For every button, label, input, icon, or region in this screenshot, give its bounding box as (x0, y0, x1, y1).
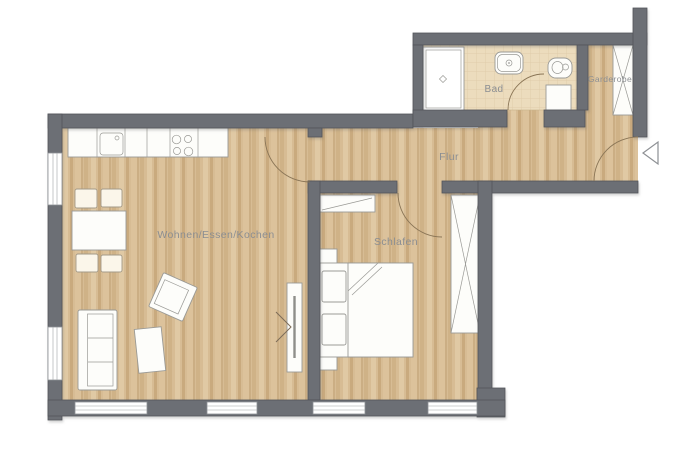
wardrobe-label: Garderobe (588, 74, 632, 84)
window-left-lower (48, 327, 62, 380)
wall-hall-bottom-left (308, 181, 397, 193)
bedroom-label: Schlafen (374, 236, 418, 248)
blanket (348, 263, 413, 357)
toilet (548, 58, 572, 78)
bed-group (318, 249, 413, 370)
wall-living-bedroom-divider (308, 181, 320, 400)
living-room-label: Wohnen/Essen/Kochen (157, 229, 274, 241)
coffee-table (134, 327, 165, 374)
dining-chair (76, 254, 98, 272)
window-bottom-4 (428, 402, 477, 414)
dining-chair (101, 189, 122, 207)
wall-bath-wardrobe-divider (577, 45, 588, 110)
bedroom-wardrobe (451, 195, 480, 333)
bathroom-label: Bad (485, 84, 504, 95)
window-bottom-3 (313, 402, 365, 414)
living-door-threshold-floor (308, 137, 322, 181)
kitchen (68, 128, 228, 157)
shower (423, 47, 464, 111)
bath-door-threshold-floor (507, 110, 544, 127)
dining-chair (75, 189, 97, 208)
pillow (322, 314, 346, 345)
window-left-upper (48, 153, 62, 205)
floorplan-drawing: Wohnen/Essen/Kochen Schlafen Flur Bad Ga… (0, 0, 690, 459)
bath-sink (495, 52, 523, 74)
floorplan-canvas: Wohnen/Essen/Kochen Schlafen Flur Bad Ga… (0, 0, 690, 459)
wall-hall-bottom-right (442, 181, 638, 193)
wall-bedroom-right (478, 181, 492, 400)
sofa-body (78, 310, 117, 390)
kitchen-counter (68, 128, 228, 157)
wall-top (48, 114, 413, 128)
bedroom-dresser (320, 195, 375, 212)
wall-bath-top (413, 33, 647, 45)
dining-table (72, 211, 126, 250)
wall-bath-bottom-right (544, 110, 585, 127)
window-bottom-1 (75, 402, 147, 414)
window-bottom-2 (207, 402, 257, 414)
wall-right-entry (633, 8, 647, 137)
entrance-arrow-icon (643, 142, 658, 164)
dining-chair (101, 255, 122, 272)
hallway-label: Flur (439, 151, 459, 163)
sofa (78, 310, 117, 390)
wall-bath-bottom-left (413, 110, 507, 127)
nightstand (318, 249, 337, 264)
wall-pillar-living-door (308, 128, 322, 137)
washing-machine (546, 85, 571, 110)
pillow (322, 271, 346, 302)
